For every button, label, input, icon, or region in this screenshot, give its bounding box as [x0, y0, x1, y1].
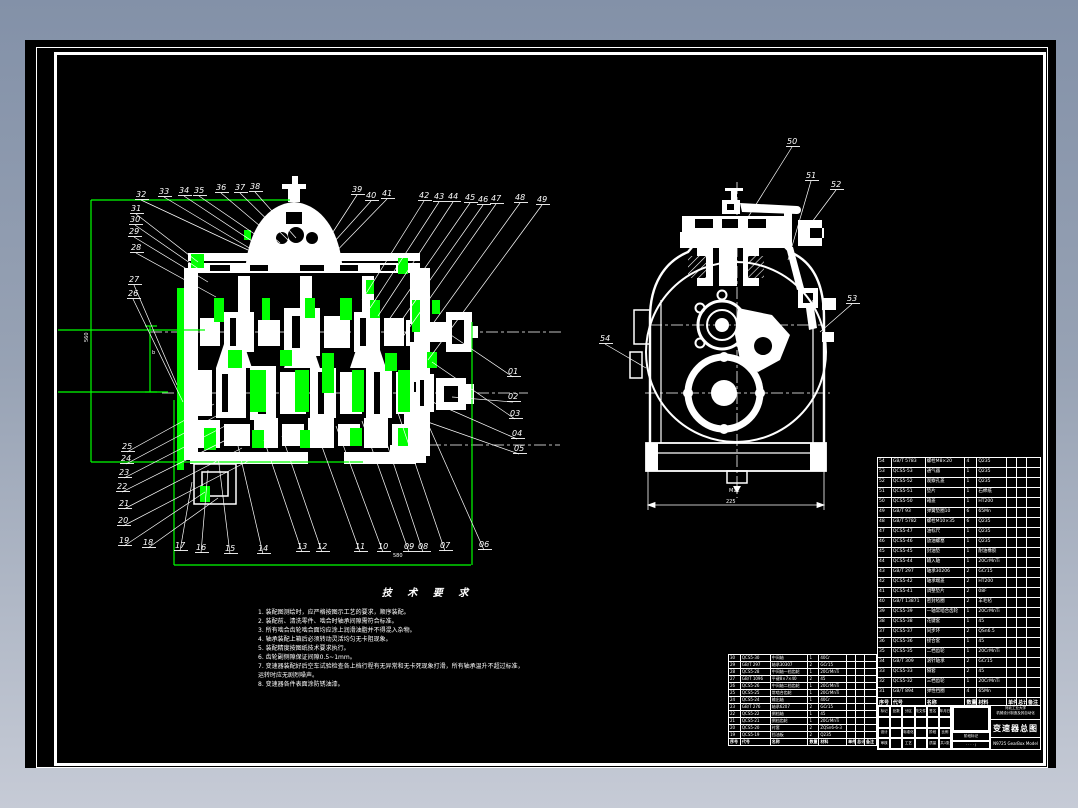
- stage-mark-column: 阶段标记 · · · · /: [951, 706, 990, 749]
- callout-13: 13: [297, 542, 307, 551]
- callout-46: 46: [478, 195, 488, 204]
- signature-cell: 比例: [939, 728, 951, 739]
- callout-39: 39: [352, 185, 362, 194]
- title-block[interactable]: 标记处数分区更改文件号签名年月日设计标准化阶段比例审核工艺质量共1张 阶段标记 …: [877, 705, 1041, 750]
- svg-text:560: 560: [84, 332, 90, 342]
- signature-cell: [939, 717, 951, 728]
- table-row: 38QCS5-38花键套145: [878, 618, 1041, 628]
- callout-16: 16: [196, 543, 206, 552]
- signature-cell: 签名: [927, 706, 939, 717]
- signature-cell: 质量: [927, 738, 939, 749]
- signature-cell: 标准化: [902, 728, 914, 739]
- callout-21: 21: [119, 499, 129, 508]
- table-row: 24QCS5-24输出轴140Cr: [729, 697, 877, 704]
- callout-53: 53: [847, 294, 857, 303]
- title-column: 河北工业大学 机械设计制造及其自动化 变速器总图 N9725 GearBox M…: [990, 706, 1040, 749]
- callout-50: 50: [787, 137, 797, 146]
- table-row: 31GB/T 894弹性挡圈465Mn: [878, 688, 1041, 698]
- table-row: 54GB/T 5783螺栓M8×204Q235: [878, 458, 1041, 468]
- callout-23: 23: [119, 468, 129, 477]
- callout-32: 32: [136, 190, 146, 199]
- table-row: 29GB/T 297轴承303072GCr15: [729, 662, 877, 669]
- table-row: 46QCS5-46放油螺塞1Q235: [878, 538, 1041, 548]
- table-row: 32QCS5-32三档齿轮120CrMnTi: [878, 678, 1041, 688]
- callout-54: 54: [600, 334, 610, 343]
- table-row: 20QCS5-20衬套2ZQSn6-6-3: [729, 725, 877, 732]
- signature-cell: 设计: [878, 728, 890, 739]
- callout-04: 04: [512, 429, 522, 438]
- callout-26: 26: [128, 289, 138, 298]
- callout-49: 49: [537, 195, 547, 204]
- table-row: 28QCS5-28中间轴一档齿轮120CrMnTi: [729, 669, 877, 676]
- table-row: 21QCS5-21倒档齿轮120CrMnTi: [729, 718, 877, 725]
- svg-text:580: 580: [393, 553, 403, 559]
- callout-33: 33: [159, 187, 169, 196]
- signature-cell: [927, 717, 939, 728]
- tech-requirements-title: 技 术 要 求: [328, 584, 528, 599]
- signature-cell: [915, 738, 927, 749]
- housing-and-gears: [184, 176, 478, 464]
- callout-45: 45: [465, 193, 475, 202]
- table-row: 34GB/T 309滚针轴承2GCr15: [878, 658, 1041, 668]
- table-row: 25QCS5-25常啮合齿轮120CrMnTi: [729, 690, 877, 697]
- cad-preview-screenshot: { "colors":{"highlight_green":"#00ff00",…: [0, 0, 1078, 808]
- callout-25: 25: [122, 442, 132, 451]
- table-row: 44QCS5-44输入轴120CrMnTi: [878, 558, 1041, 568]
- right-view-gearbox-end[interactable]: [630, 182, 836, 510]
- table-row: 33QCS5-33隔套245: [878, 668, 1041, 678]
- callout-20: 20: [118, 516, 128, 525]
- callout-02: 02: [508, 392, 518, 401]
- parts-table-extension[interactable]: 30QCS5-30中间轴140Cr29GB/T 297轴承303072GCr15…: [728, 654, 877, 746]
- callout-44: 44: [448, 192, 458, 201]
- callout-09: 09: [404, 542, 414, 551]
- signature-cell: [915, 717, 927, 728]
- table-row: 22QCS5-22倒档轴145: [729, 711, 877, 718]
- callout-24: 24: [121, 454, 131, 463]
- hatch-right: [748, 256, 764, 278]
- table-row: 47QCS5-47油标尺1Q235: [878, 528, 1041, 538]
- signature-cell: [890, 728, 902, 739]
- signature-cell: 更改文件号: [915, 706, 927, 717]
- signature-cell: 审核: [878, 738, 890, 749]
- table-row: 42QCS5-42轴承端盖2HT200: [878, 578, 1041, 588]
- table-row: 19QCS5-19挡油板2Q235: [729, 732, 877, 739]
- drawing-footer: N9725 GearBox Model: [991, 737, 1040, 749]
- callout-03: 03: [510, 409, 520, 418]
- organization-cell: 河北工业大学 机械设计制造及其自动化: [991, 706, 1040, 720]
- table-row: 49GB/T 93弹簧垫圈10665Mn: [878, 508, 1041, 518]
- stage-mark-dots: · · · · /: [952, 741, 990, 750]
- callout-42: 42: [419, 191, 429, 200]
- svg-text:b: b: [152, 350, 155, 356]
- signature-cell: [915, 728, 927, 739]
- callout-31: 31: [131, 204, 141, 213]
- table-row: 43GB/T 297轴承302062GCr15: [878, 568, 1041, 578]
- table-row: 45QCS5-45封油垫1耐油橡胶: [878, 548, 1041, 558]
- callout-12: 12: [317, 542, 327, 551]
- signature-cell: [878, 717, 890, 728]
- callout-43: 43: [434, 192, 444, 201]
- table-row: 53QCS5-53通气器1Q235: [878, 468, 1041, 478]
- table-row: 37QCS5-37同步环2QSn6.5: [878, 628, 1041, 638]
- callout-41: 41: [382, 189, 392, 198]
- callout-28: 28: [131, 243, 141, 252]
- stage-mark-label: 阶段标记: [952, 732, 990, 741]
- callout-35: 35: [194, 186, 204, 195]
- callout-17: 17: [175, 541, 186, 550]
- callout-14: 14: [258, 544, 268, 553]
- callout-27: 27: [129, 275, 140, 284]
- callout-36: 36: [216, 183, 226, 192]
- table-row: 39QCS5-39一轴常啮合齿轮120CrMnTi: [878, 608, 1041, 618]
- callout-40: 40: [366, 191, 376, 200]
- callout-10: 10: [378, 542, 388, 551]
- callout-05: 05: [514, 444, 524, 453]
- table-row: 36QCS5-36接合套145: [878, 638, 1041, 648]
- callout-38: 38: [250, 182, 260, 191]
- callout-47: 47: [491, 194, 502, 203]
- callout-48: 48: [515, 193, 525, 202]
- callout-19: 19: [119, 536, 129, 545]
- callout-08: 08: [418, 542, 428, 551]
- signature-cell: 共1张: [939, 738, 951, 749]
- callout-22: 22: [117, 482, 127, 491]
- tech-requirements-lines: 1. 装配图测绘时，应严格按图示工艺的要求，顺序装配。2. 装配前、清洗零件、啮…: [258, 608, 548, 689]
- callout-37: 37: [235, 183, 246, 192]
- callout-11: 11: [355, 542, 365, 551]
- org-line2: 机械设计制造及其自动化: [991, 711, 1040, 716]
- technical-requirements: 技 术 要 求 1. 装配图测绘时，应严格按图示工艺的要求，顺序装配。2. 装配…: [258, 584, 548, 689]
- callout-07: 07: [440, 541, 451, 550]
- signature-cell: 标记: [878, 706, 890, 717]
- table-row: 23GB/T 276轴承62072GCr15: [729, 704, 877, 711]
- svg-text:225: 225: [726, 499, 736, 505]
- table-header-row: 序号代号名称数量材料单件总计备注: [729, 739, 877, 746]
- callout-06: 06: [479, 540, 489, 549]
- drawing-title: 变速器总图: [991, 720, 1040, 737]
- signature-cell: 分区: [902, 706, 914, 717]
- table-row: 35QCS5-35二档齿轮120CrMnTi: [878, 648, 1041, 658]
- table-row: 40GB/T 13871密封毡圈2羊毛毡: [878, 598, 1041, 608]
- stage-mark-box: [952, 706, 990, 732]
- table-row: 50QCS5-50箱盖1HT200: [878, 498, 1041, 508]
- callout-01: 01: [508, 367, 518, 376]
- signature-cell: [890, 738, 902, 749]
- callout-29: 29: [129, 227, 139, 236]
- signature-cell: 阶段: [927, 728, 939, 739]
- table-row: 26QCS5-26中间轴二档齿轮120CrMnTi: [729, 683, 877, 690]
- callout-15: 15: [225, 544, 235, 553]
- callout-30: 30: [130, 215, 140, 224]
- callout-18: 18: [143, 538, 153, 547]
- signature-cell: [902, 717, 914, 728]
- table-row: 30QCS5-30中间轴140Cr: [729, 655, 877, 662]
- callout-51: 51: [806, 171, 816, 180]
- callout-52: 52: [831, 180, 841, 189]
- signature-cell: 年月日: [939, 706, 951, 717]
- table-row: 41QCS5-41调整垫片208F: [878, 588, 1041, 598]
- callout-34: 34: [179, 186, 189, 195]
- bearing-bosses: [646, 291, 836, 494]
- svg-text:M12: M12: [729, 488, 740, 494]
- signature-cell: [890, 717, 902, 728]
- table-row: 52QCS5-52观察孔盖1Q235: [878, 478, 1041, 488]
- signature-grid: 标记处数分区更改文件号签名年月日设计标准化阶段比例审核工艺质量共1张: [878, 706, 951, 749]
- table-row: 27GB/T 1096平键8×7×40245: [729, 676, 877, 683]
- table-row: 48GB/T 5782螺栓M10×356Q235: [878, 518, 1041, 528]
- signature-cell: 处数: [890, 706, 902, 717]
- parts-table-main[interactable]: 54GB/T 5783螺栓M8×204Q23553QCS5-53通气器1Q235…: [877, 457, 1041, 709]
- table-row: 51QCS5-51垫片1石棉纸: [878, 488, 1041, 498]
- signature-cell: 工艺: [902, 738, 914, 749]
